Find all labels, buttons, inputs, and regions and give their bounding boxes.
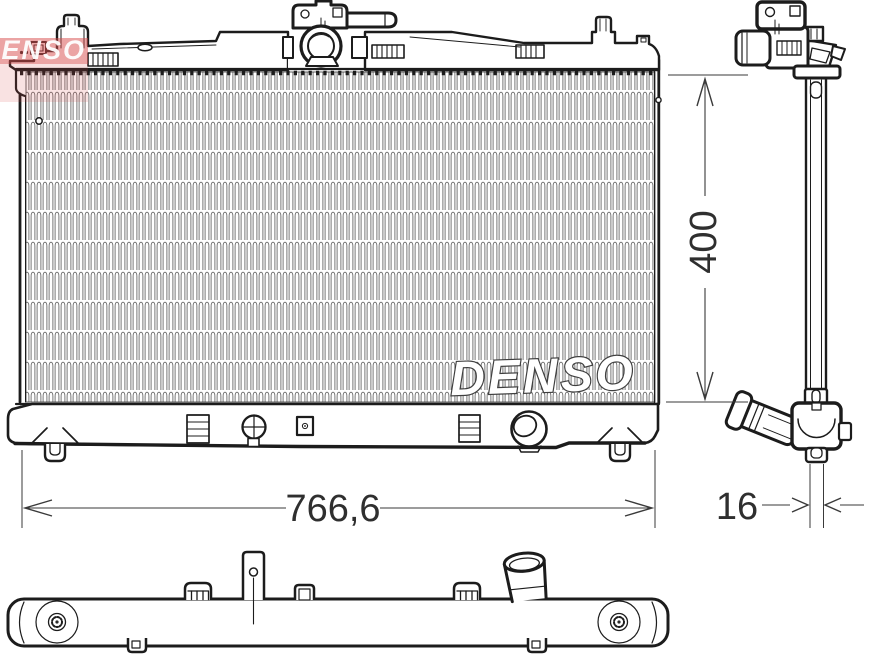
mounting-hole <box>656 97 661 102</box>
ribbed-section <box>372 45 404 58</box>
bottom-tank-underside <box>8 599 668 646</box>
clip-double <box>185 583 211 600</box>
logo-band-fade <box>0 64 88 102</box>
bottom-tank <box>8 404 658 461</box>
side-outlet-assembly <box>724 389 851 462</box>
vent-hole <box>138 44 152 50</box>
outlet-pipe-bottom-view <box>503 551 548 602</box>
radiator-side-view <box>724 2 851 462</box>
dimension-depth: 16 <box>716 464 864 528</box>
overflow-pipe <box>347 13 396 27</box>
mounting-hole <box>36 118 42 124</box>
side-filler-assembly <box>736 2 845 78</box>
ribbed-section <box>88 53 118 66</box>
diagram-canvas: 766,6 400 16 DENSO DENSO <box>0 0 872 654</box>
side-inlet-pipe <box>736 31 770 65</box>
radiator-bottom-view <box>8 551 668 652</box>
clip-double <box>454 583 480 600</box>
clip-small <box>295 585 314 600</box>
dimension-width: 766,6 <box>22 450 655 530</box>
clip-bottom <box>128 638 146 652</box>
arrowhead-right-icon <box>792 498 808 512</box>
denso-logo: DENSO <box>0 35 88 102</box>
arrowhead-left-icon <box>825 498 841 512</box>
right-side-plate <box>655 60 662 403</box>
depth-dimension-label: 16 <box>716 486 758 528</box>
connector-block <box>459 415 480 442</box>
radiator-technical-drawing: 766,6 400 16 DENSO DENSO <box>0 0 872 654</box>
height-dimension-label: 400 <box>683 210 725 273</box>
denso-watermark: DENSO <box>449 347 636 406</box>
side-core-bar <box>804 78 828 390</box>
connector-block <box>187 415 209 443</box>
width-dimension-label: 766,6 <box>285 488 380 530</box>
clip-bottom <box>528 638 546 652</box>
clip <box>297 417 313 435</box>
logo-text: DENSO <box>0 35 86 65</box>
dimension-height: 400 <box>666 75 748 402</box>
